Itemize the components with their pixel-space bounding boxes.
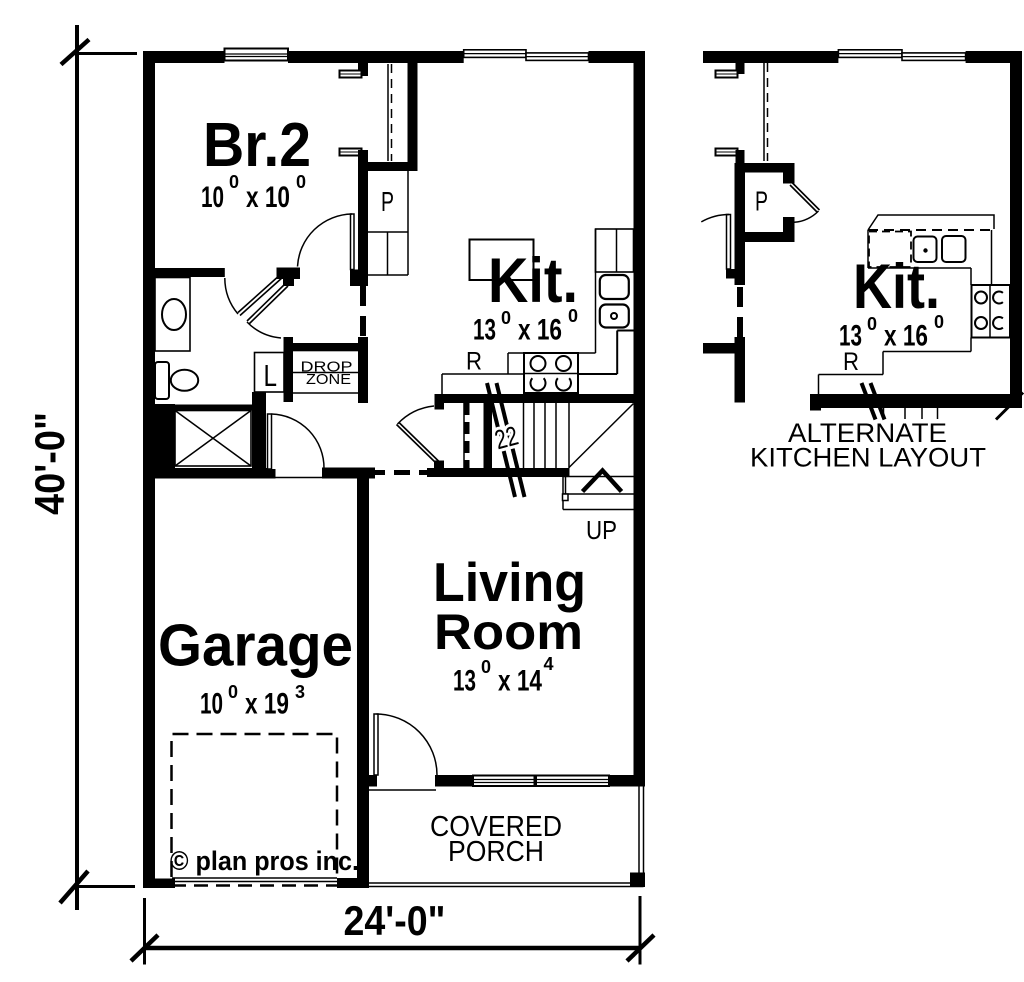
svg-text:P: P <box>381 186 394 217</box>
svg-text:3: 3 <box>295 682 305 702</box>
svg-text:PORCH: PORCH <box>448 836 544 868</box>
svg-text:L: L <box>264 358 278 393</box>
svg-text:4: 4 <box>544 654 554 674</box>
svg-text:Kit.: Kit. <box>853 252 940 322</box>
svg-text:0: 0 <box>296 172 306 192</box>
svg-text:x 10: x 10 <box>246 181 290 214</box>
svg-text:0: 0 <box>934 312 944 332</box>
svg-text:13: 13 <box>453 665 476 698</box>
svg-text:24'-0": 24'-0" <box>344 897 446 944</box>
svg-text:x 19: x 19 <box>245 688 289 721</box>
svg-text:10: 10 <box>201 181 224 214</box>
svg-text:0: 0 <box>867 314 877 334</box>
svg-text:R: R <box>843 348 859 376</box>
svg-text:x 16: x 16 <box>518 314 562 347</box>
svg-text:ZONE: ZONE <box>306 371 351 388</box>
svg-text:© plan pros inc.: © plan pros inc. <box>170 846 359 876</box>
svg-text:0: 0 <box>481 657 491 677</box>
svg-text:13: 13 <box>473 314 496 347</box>
svg-text:40'-0": 40'-0" <box>26 412 73 515</box>
svg-text:UP: UP <box>586 515 617 545</box>
svg-text:0: 0 <box>228 682 238 702</box>
svg-text:x 16: x 16 <box>884 320 928 353</box>
svg-text:Kit.: Kit. <box>488 246 578 316</box>
svg-text:x 14: x 14 <box>498 665 542 698</box>
svg-text:Garage: Garage <box>158 613 353 679</box>
svg-text:10: 10 <box>200 688 223 721</box>
svg-text:0: 0 <box>501 308 511 328</box>
svg-text:R: R <box>466 348 482 376</box>
svg-text:KITCHEN LAYOUT: KITCHEN LAYOUT <box>750 443 986 473</box>
svg-text:P: P <box>755 186 768 217</box>
svg-text:0: 0 <box>568 306 578 326</box>
svg-text:Br.2: Br.2 <box>203 111 311 180</box>
svg-text:0: 0 <box>229 172 239 192</box>
svg-text:Room: Room <box>434 604 583 660</box>
